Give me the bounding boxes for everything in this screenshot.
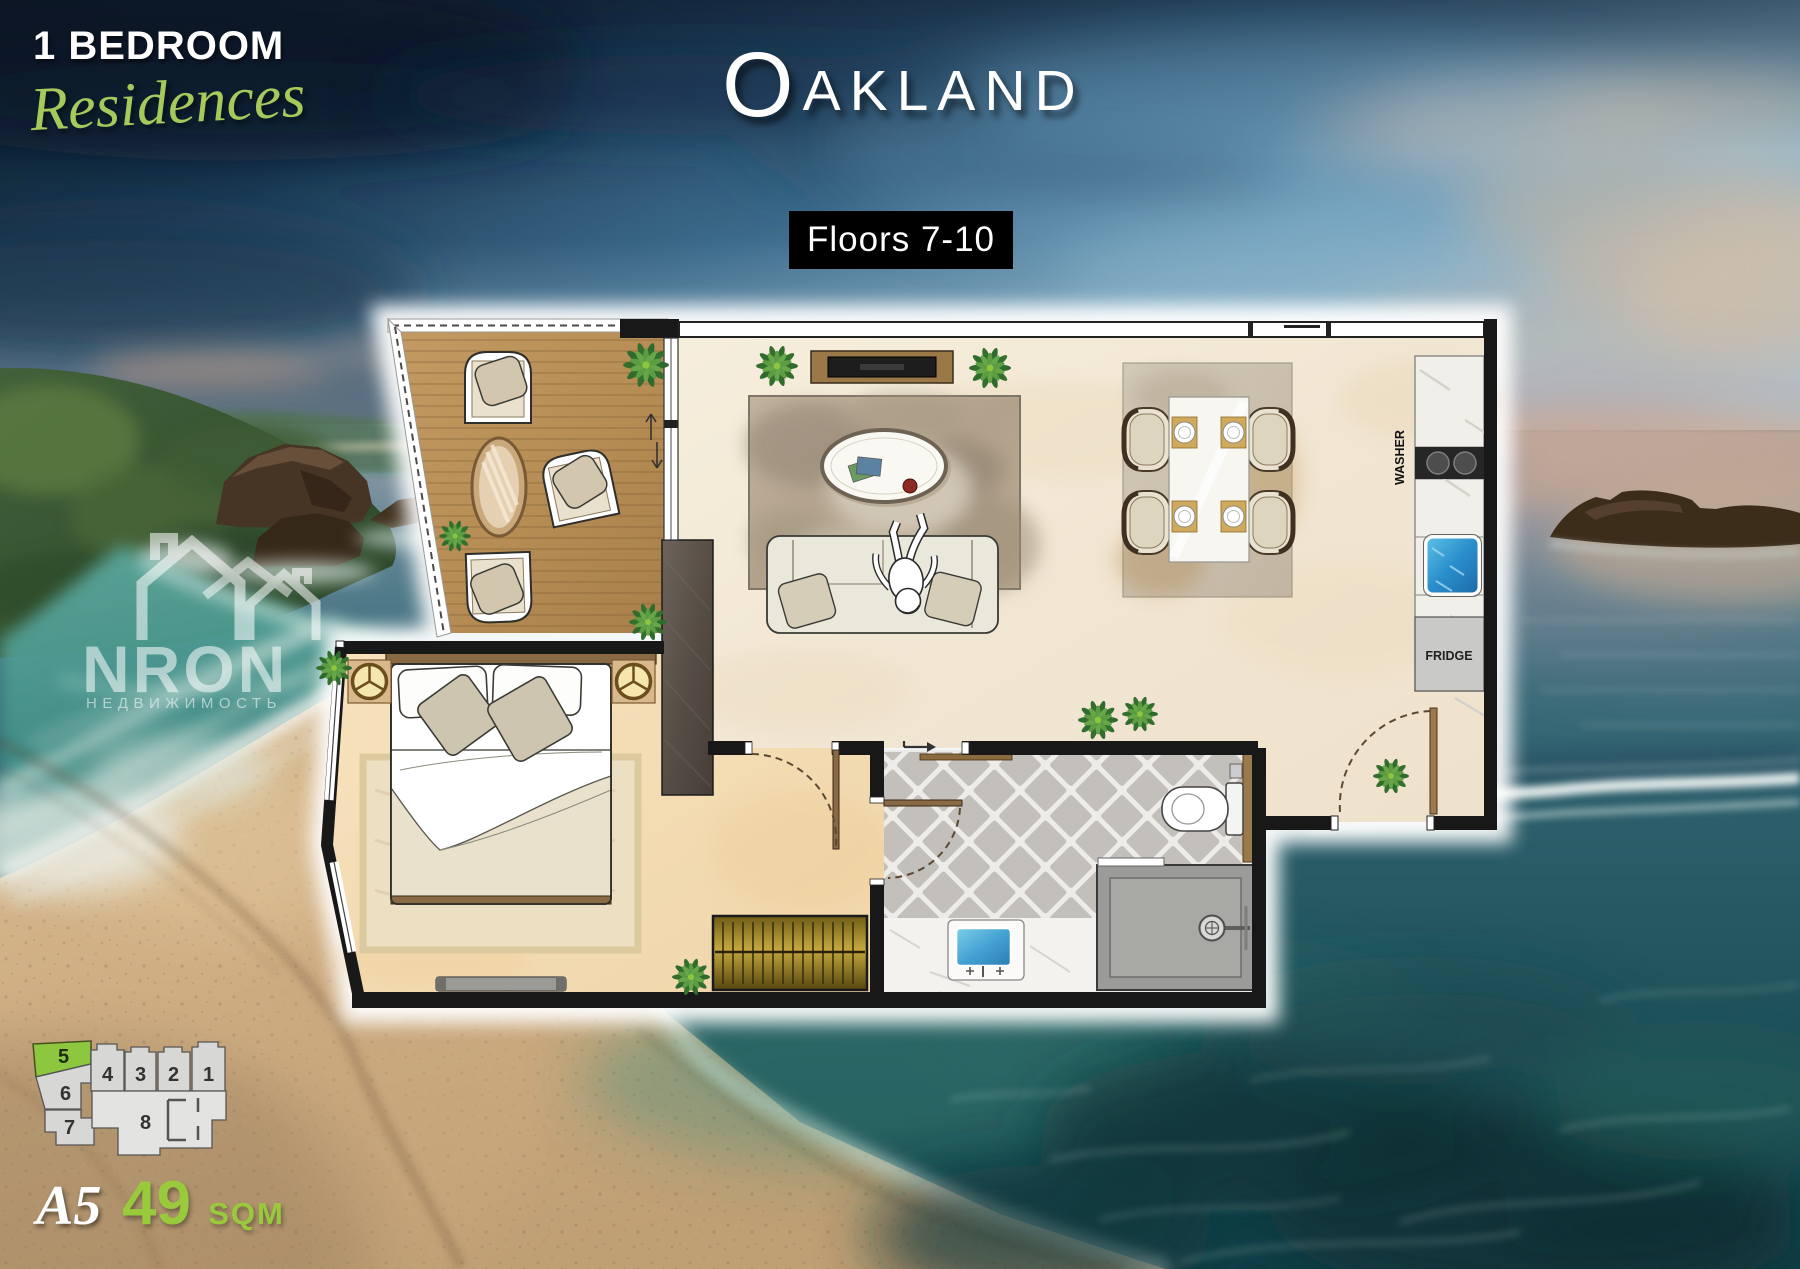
svg-text:НЕДВИЖИМОСТЬ: НЕДВИЖИМОСТЬ [86, 695, 282, 712]
